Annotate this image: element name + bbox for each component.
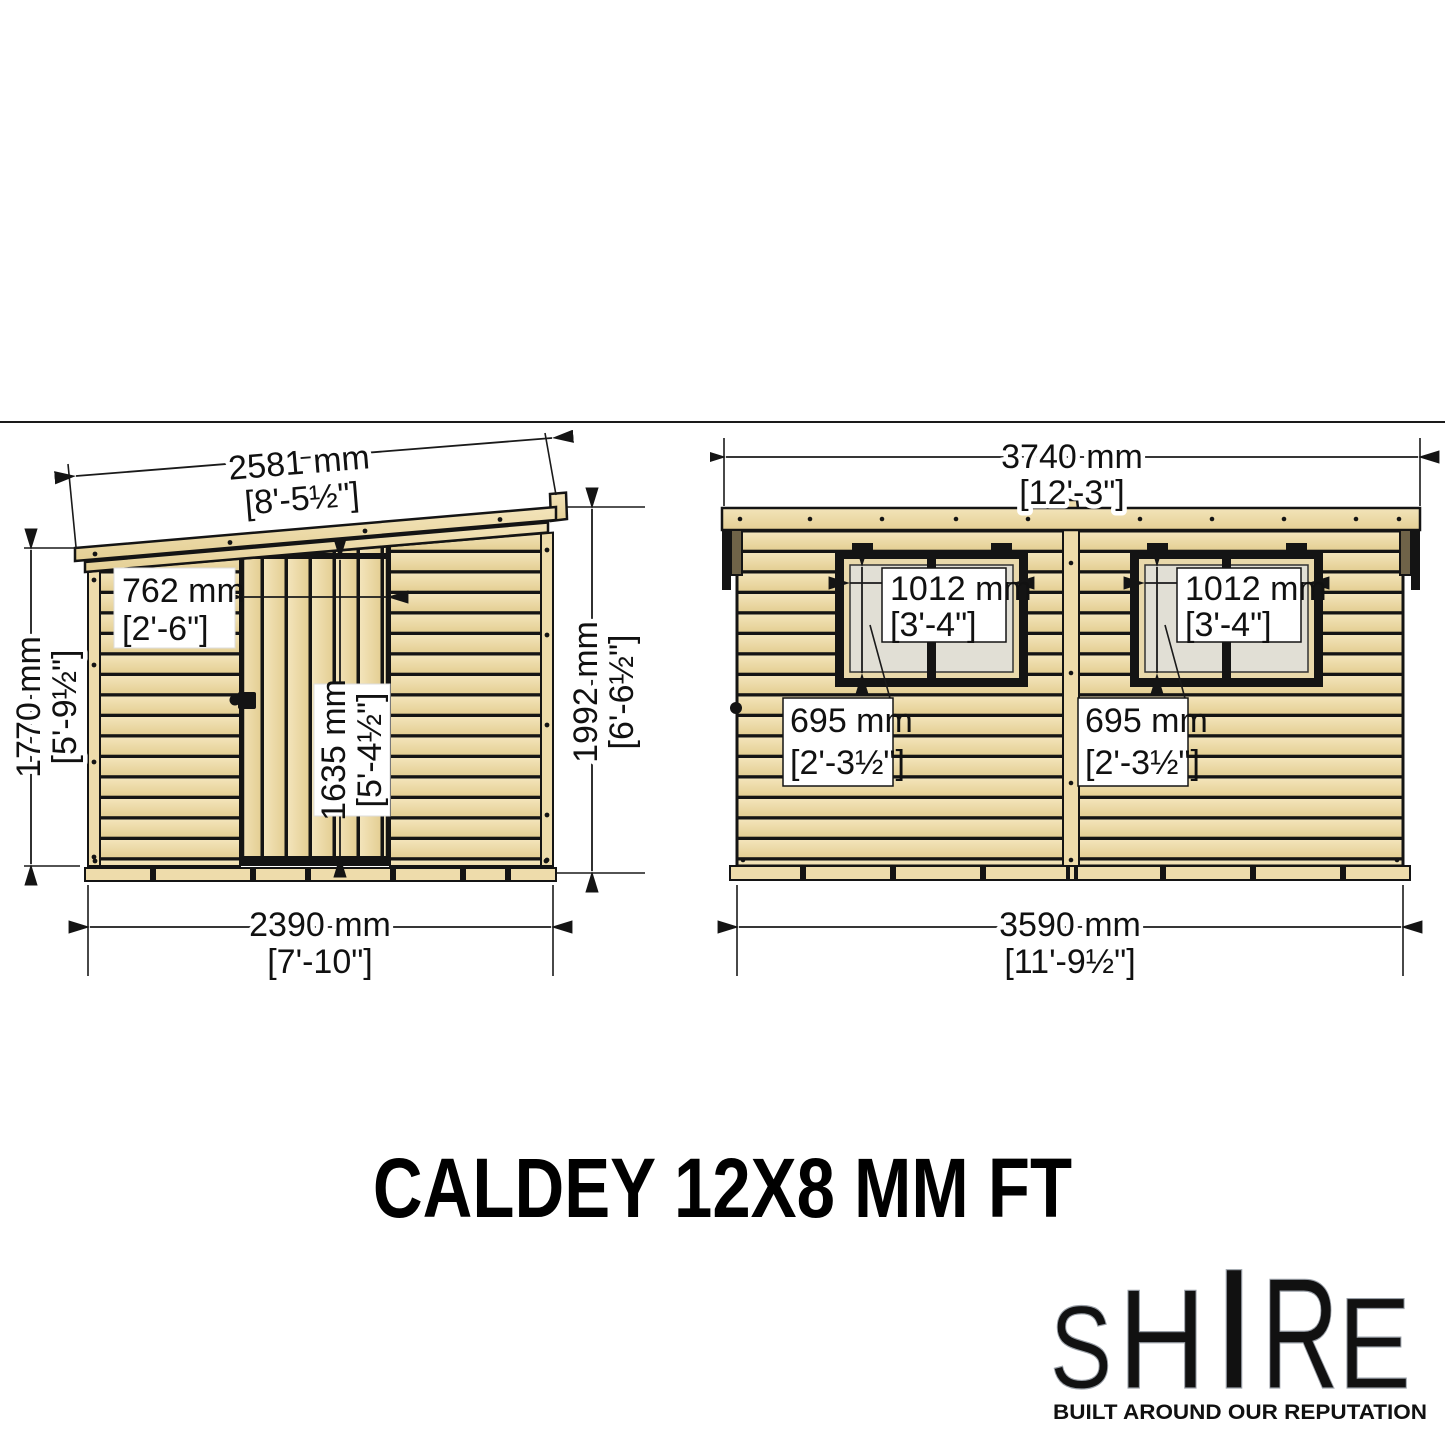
logo-letter-i: I [1211,1243,1257,1425]
dim-ridge-height-mm: 1992 mm [567,621,605,763]
dim-base-length-mm: 3590 mm [999,906,1141,944]
center-batten [1063,530,1079,866]
door-latch-knob [730,702,742,714]
dim-ridge-height-imperial: [6'-6½"] [603,635,641,750]
dim-base-length-imperial: [11'-9½"] [1004,943,1135,981]
front-cladding-right [390,534,541,866]
dim-eaves-height-imperial: [5'-9½"] [46,650,84,765]
window-hinge [852,543,873,551]
dim-side-roof-length: 3740 mm [12'-3"] [724,438,1420,512]
dim-front-eaves-height: 1770 mm [5'-9½"] [10,548,84,866]
dim-front-base-width: 2390 mm [7'-10"] [88,885,553,981]
logo-letter-s: S [1050,1282,1112,1414]
front-corner-batten-left [88,571,100,866]
sheet-top-border [0,421,1445,423]
window-hinge [1286,543,1307,551]
logo-letters: S H I R E [1050,1243,1411,1425]
dim-window-width-imperial: [3'-4"] [1185,606,1272,644]
dim-door-height-imperial: [5'-4½"] [351,693,389,808]
dim-window-width-mm: 1012 mm [890,570,1032,608]
shire-logo: S H I R E BUILT AROUND OUR REPUTATION [1038,1243,1440,1433]
logo-letter-h: H [1118,1260,1206,1419]
drawing-title: CALDEY 12X8 MM FT [130,1140,1315,1237]
dim-base-width-imperial: [7'-10"] [267,943,373,981]
dim-window-width-mm: 1012 mm [1185,570,1327,608]
dim-base-width-mm: 2390 mm [249,906,391,944]
dim-door-width-imperial: [2'-6"] [122,610,209,648]
logo-letter-e: E [1338,1270,1411,1416]
logo-letter-r: R [1261,1246,1339,1422]
dim-eaves-height-mm: 1770 mm [10,636,48,778]
dim-window-height-imperial: [2'-3½"] [1085,744,1200,782]
dim-window-height-mm: 695 mm [790,702,913,740]
side-elevation-view: 1012 mm [3'-4"] 695 mm [2'-3½"] 1012 mm … [710,430,1445,1000]
dim-side-base-length: 3590 mm [11'-9½"] [737,885,1403,981]
dim-roof-length-mm: 3740 mm [1001,438,1143,476]
dim-roof-width-imperial: [8'-5½"] [243,475,361,522]
dim-window-height-imperial: [2'-3½"] [790,744,905,782]
window-hinge [1147,543,1168,551]
logo-tagline: BUILT AROUND OUR REPUTATION [1053,1401,1427,1424]
dim-window-width-imperial: [3'-4"] [890,606,977,644]
dim-door-width-mm: 762 mm [122,572,245,610]
window-hinge [991,543,1012,551]
door-bottom-rail [243,856,387,862]
dim-roof-length-imperial: [12'-3"] [1019,474,1125,512]
dim-front-ridge-height: 1992 mm [6'-6½"] [557,507,645,873]
front-elevation-view: 2581 mm [8'-5½"] 1770 mm [5'-9½"] 1992 m… [0,430,660,1000]
drawing-sheet: 2581 mm [8'-5½"] 1770 mm [5'-9½"] 1992 m… [0,0,1445,1445]
dim-window-height-mm: 695 mm [1085,702,1208,740]
dim-door-height-mm: 1635 mm [315,679,353,821]
